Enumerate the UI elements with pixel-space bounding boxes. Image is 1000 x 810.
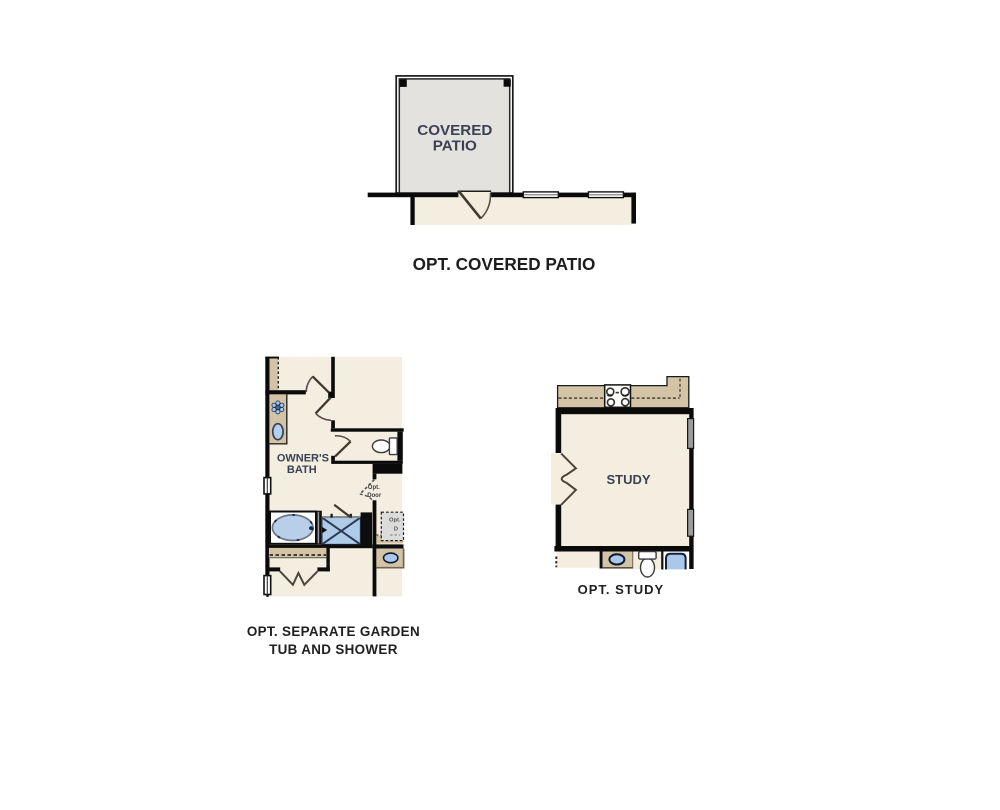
svg-text:D: D	[394, 527, 398, 533]
svg-text:Opt.: Opt.	[389, 517, 401, 523]
svg-text:Door: Door	[367, 493, 382, 499]
svg-text:TUB AND SHOWER: TUB AND SHOWER	[269, 642, 398, 657]
svg-text:PATIO: PATIO	[433, 137, 477, 154]
svg-text:Opt.: Opt.	[368, 485, 380, 491]
svg-text:OPT. SEPARATE GARDEN: OPT. SEPARATE GARDEN	[247, 624, 420, 639]
svg-text:STUDY: STUDY	[606, 472, 650, 487]
svg-text:COVERED: COVERED	[417, 122, 492, 139]
svg-text:BATH: BATH	[287, 464, 317, 476]
svg-text:OPT. STUDY: OPT. STUDY	[578, 582, 665, 597]
svg-text:OPT. COVERED PATIO: OPT. COVERED PATIO	[413, 254, 596, 274]
svg-text:OWNER'S: OWNER'S	[277, 452, 329, 464]
